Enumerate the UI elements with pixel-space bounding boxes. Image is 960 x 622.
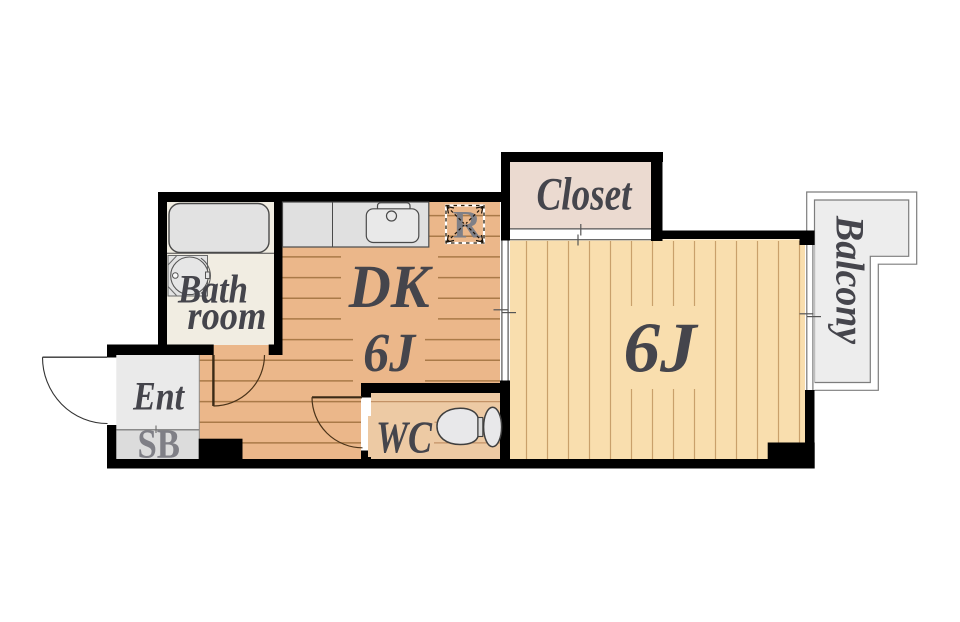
svg-text:6J: 6J — [363, 322, 416, 383]
svg-text:DK: DK — [348, 254, 434, 321]
svg-text:Balcony: Balcony — [828, 215, 873, 344]
svg-text:SB: SB — [137, 421, 180, 467]
svg-text:6J: 6J — [624, 310, 700, 388]
svg-text:R: R — [453, 204, 482, 247]
svg-text:Ent: Ent — [132, 374, 185, 419]
svg-text:room: room — [187, 293, 266, 338]
svg-text:WC: WC — [376, 413, 433, 463]
svg-text:Closet: Closet — [537, 169, 634, 221]
